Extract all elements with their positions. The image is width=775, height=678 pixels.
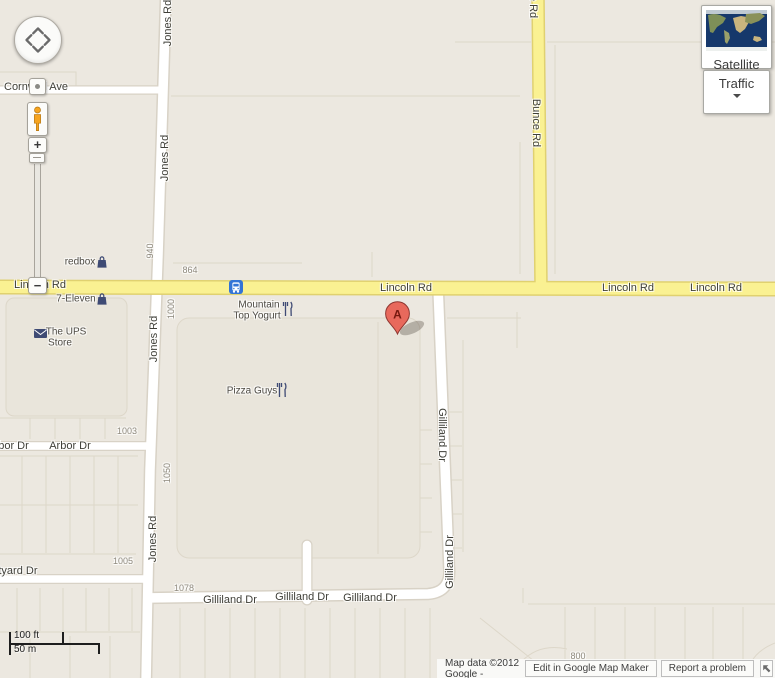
arrow-up-left-icon [761, 663, 772, 674]
address-number: 1005 [113, 556, 133, 566]
pan-right-button[interactable] [45, 35, 50, 45]
street-label-bunce-rd: Bunce Rd [530, 99, 542, 147]
zoom-out-button[interactable]: − [28, 277, 47, 294]
address-number: 1003 [117, 426, 137, 436]
street-label-lincoln-rd: Lincoln Rd [380, 282, 432, 294]
street-label-jones-rd: Jones Rd [159, 135, 171, 181]
pan-control[interactable] [14, 16, 62, 64]
poi-label-mountain-top-yogurt: Mountain [238, 300, 279, 311]
shopping-bag-icon [96, 292, 108, 306]
street-label-jones-rd: Jones Rd [162, 0, 174, 46]
satellite-button[interactable]: Satellite [701, 5, 772, 69]
arterial-roads [0, 0, 775, 289]
street-view-pegman[interactable] [27, 102, 48, 136]
bus-stop-icon[interactable] [229, 280, 243, 294]
poi-label-ups-store: The UPS [46, 327, 87, 338]
street-label-lincoln-rd: Lincoln Rd [602, 282, 654, 294]
scale-meters-label: 50 m [14, 644, 36, 655]
collapse-attribution-button[interactable] [760, 660, 773, 677]
restaurant-icon [276, 382, 287, 398]
poi-label-ups-store: Store [48, 338, 72, 349]
map-canvas[interactable]: Cornwall Ave Lincoln Rd Lincoln Rd Linco… [0, 0, 775, 678]
scale-feet-label: 100 ft [14, 630, 39, 641]
address-number: 1050 [162, 463, 172, 483]
street-label-jones-rd: Jones Rd [147, 516, 159, 562]
street-label-gilliland-dr: Gilliland Dr [436, 408, 448, 462]
restaurant-icon [282, 301, 293, 317]
report-a-problem-button[interactable]: Report a problem [661, 660, 754, 677]
edit-in-map-maker-button[interactable]: Edit in Google Map Maker [525, 660, 657, 677]
chevron-down-icon [733, 94, 741, 98]
zoom-in-button[interactable]: + [28, 137, 47, 153]
street-label-gilliland-dr: Gilliland Dr [444, 535, 456, 589]
poi-label-7-eleven: 7-Eleven [56, 294, 95, 305]
street-label-bunce-rd: Bunce Rd [527, 0, 539, 18]
map-roads-layer [0, 0, 775, 678]
street-label-gilliland-dr: Gilliland Dr [203, 594, 257, 606]
traffic-button[interactable]: Traffic [703, 70, 770, 114]
arterial-road-casings [0, 0, 775, 289]
street-label-arbor-dr: Arbor Dr [0, 440, 29, 452]
street-label-gilliland-dr: Gilliland Dr [275, 591, 329, 603]
pan-up-button[interactable] [33, 29, 43, 34]
pegman-icon [31, 106, 44, 133]
poi-label-redbox: redbox [65, 257, 96, 268]
marker-letter: A [393, 308, 402, 322]
pan-down-button[interactable] [33, 47, 43, 52]
attribution-bar: Map data ©2012 Google - Edit in Google M… [437, 659, 775, 678]
zoom-slider-track[interactable] [34, 164, 41, 278]
city-block [6, 298, 127, 416]
center-dot-icon [35, 84, 40, 89]
poi-label-pizza-guys: Pizza Guys [227, 386, 278, 397]
address-number: 940 [145, 243, 155, 258]
street-label-gilliland-dr: Gilliland Dr [343, 592, 397, 604]
address-number: 1078 [174, 583, 194, 593]
map-marker-a[interactable]: A [384, 301, 434, 336]
map-data-copyright: Map data ©2012 Google - [445, 658, 521, 678]
pan-left-button[interactable] [27, 35, 32, 45]
traffic-button-label: Traffic [704, 76, 769, 91]
street-label-jones-rd: Jones Rd [148, 316, 160, 362]
satellite-thumbnail-icon [706, 10, 767, 56]
address-number: 864 [182, 265, 197, 275]
poi-label-mountain-top-yogurt: Top Yogurt [233, 311, 280, 322]
recenter-button[interactable] [29, 78, 46, 95]
shopping-bag-icon [96, 255, 108, 269]
street-label-courtyard-dr: Courtyard Dr [0, 565, 37, 577]
street-label-lincoln-rd: Lincoln Rd [690, 282, 742, 294]
city-block [177, 318, 420, 558]
address-number: 1000 [166, 299, 176, 319]
street-label-arbor-dr: Arbor Dr [49, 440, 91, 452]
zoom-slider-handle[interactable] [29, 153, 45, 163]
